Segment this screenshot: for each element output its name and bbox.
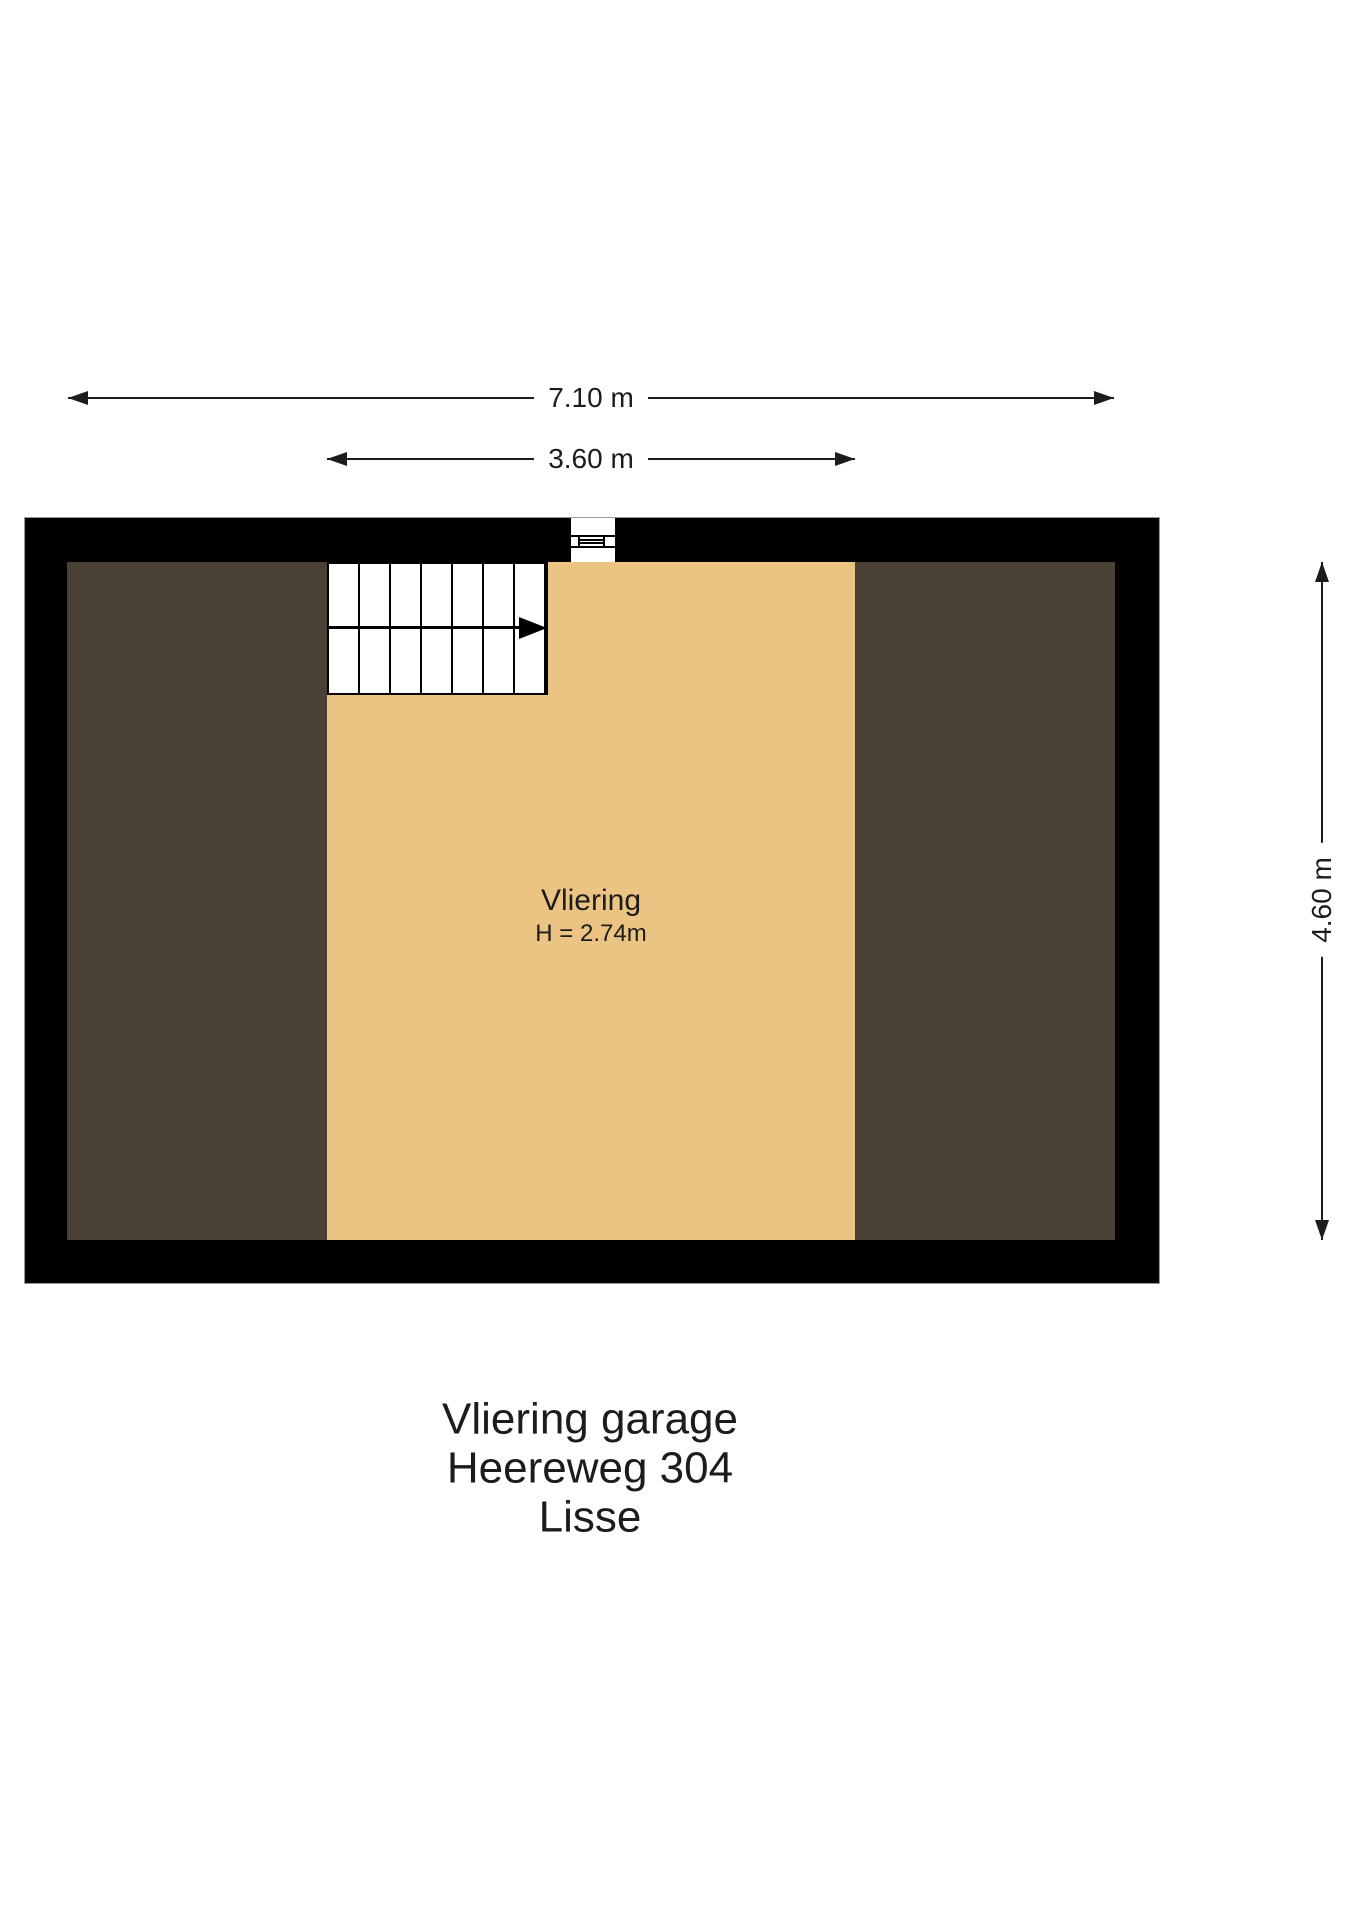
title-line-3: Lisse <box>442 1493 738 1542</box>
hatch-rung <box>580 542 603 544</box>
stair-direction-arrow-icon <box>519 617 547 639</box>
dimension-label-wrap: 7.10 m <box>68 381 1114 415</box>
floor-area-left <box>67 562 327 1240</box>
hatch-rung <box>580 539 603 541</box>
center-width-label: 3.60 m <box>534 442 648 476</box>
stair-run-line <box>329 626 520 629</box>
arrowhead-up-icon <box>1315 562 1329 582</box>
arrowhead-down-icon <box>1315 1220 1329 1240</box>
room-height-label: H = 2.74m <box>535 919 646 949</box>
dimension-line-center-width: 3.60 m <box>327 458 855 460</box>
loft-hatch-icon <box>571 535 615 548</box>
staircase <box>327 562 548 695</box>
floorplan-page: 7.10 m 3.60 m Vliering H = 2.7 <box>0 0 1358 1920</box>
dimension-line-total-width: 7.10 m <box>68 397 1114 399</box>
total-height-label: 4.60 m <box>1305 843 1339 957</box>
total-width-label: 7.10 m <box>534 381 648 415</box>
room-name: Vliering <box>535 883 646 919</box>
wall-opening <box>571 518 615 562</box>
dimension-label-wrap: 3.60 m <box>327 442 855 476</box>
room-label: Vliering H = 2.74m <box>535 883 646 949</box>
title-line-2: Heereweg 304 <box>442 1444 738 1493</box>
title-line-1: Vliering garage <box>442 1395 738 1444</box>
floor-area-right <box>855 562 1115 1240</box>
hatch-divider <box>603 537 605 546</box>
title-block: Vliering garage Heereweg 304 Lisse <box>442 1395 738 1542</box>
